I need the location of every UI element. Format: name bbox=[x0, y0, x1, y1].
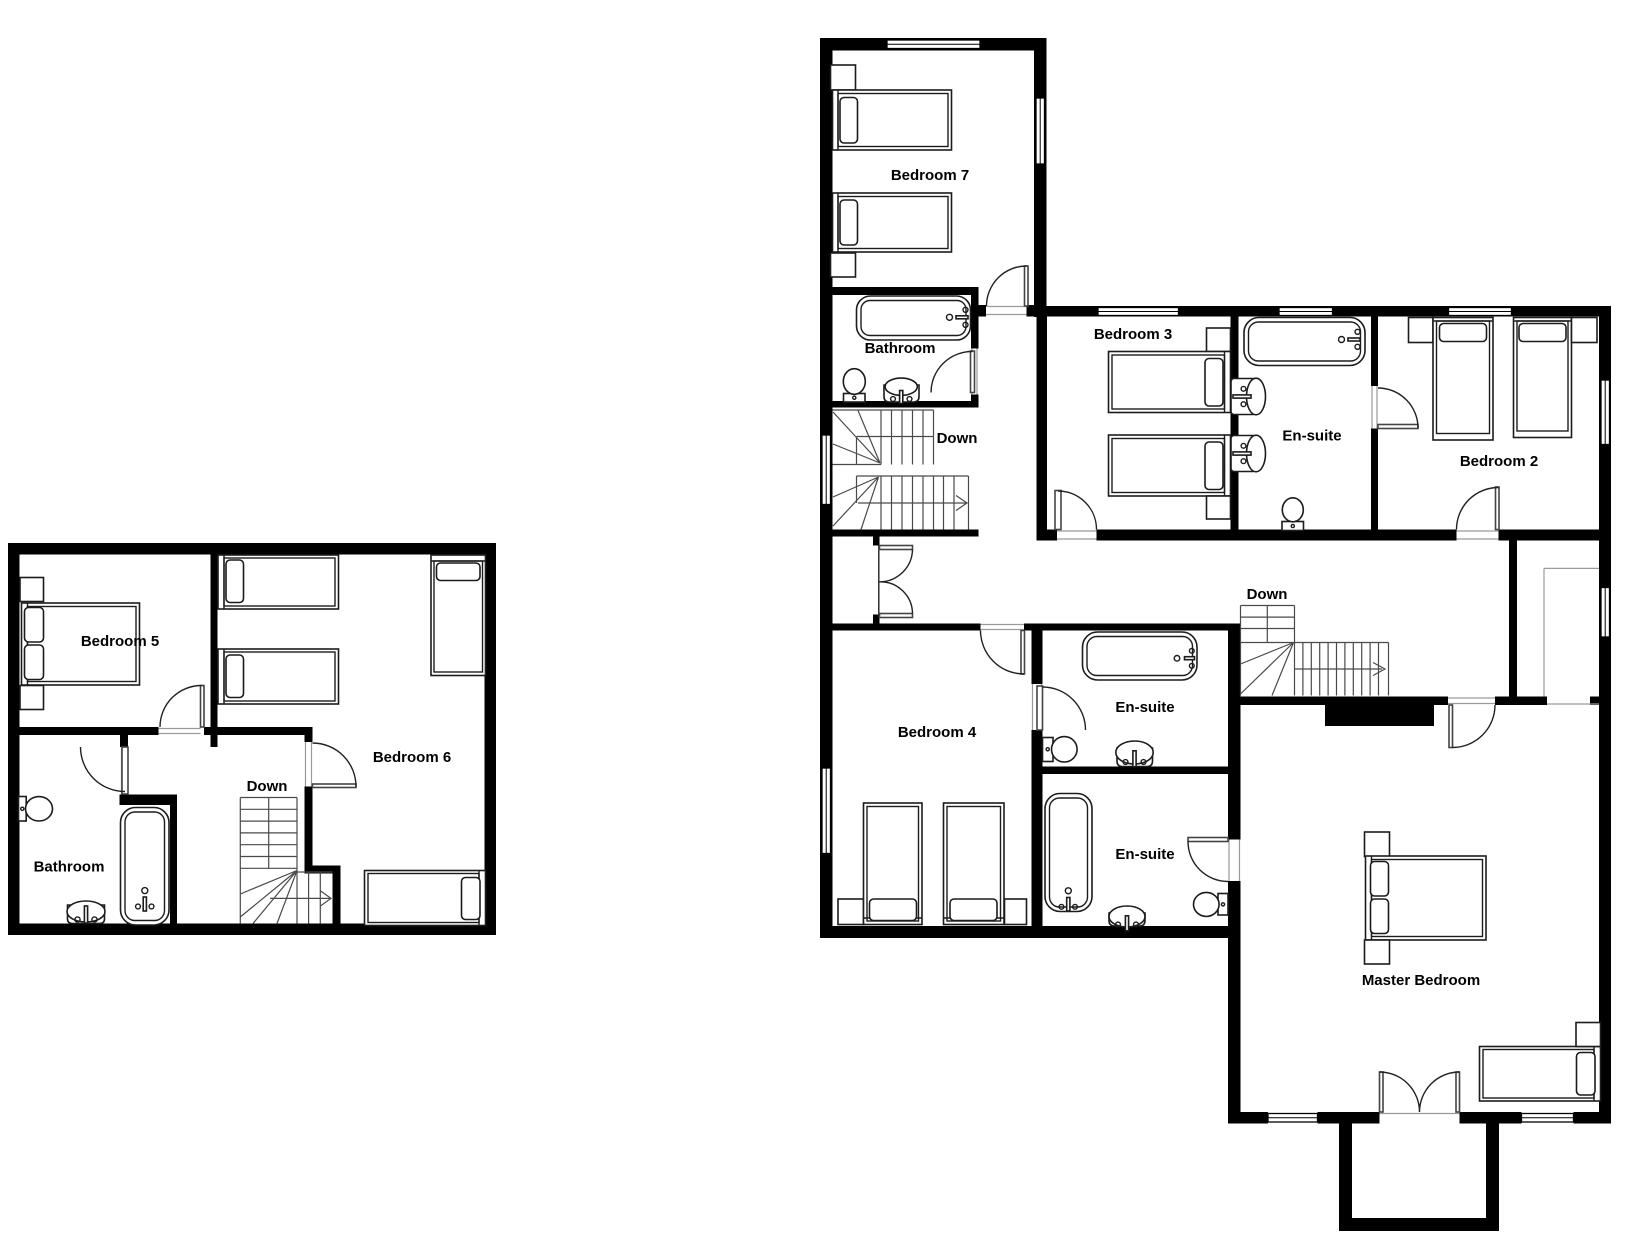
svg-text:Bedroom 6: Bedroom 6 bbox=[373, 749, 451, 766]
svg-text:Down: Down bbox=[247, 778, 288, 795]
svg-text:Bedroom 3: Bedroom 3 bbox=[1094, 326, 1172, 343]
svg-text:Bathroom: Bathroom bbox=[34, 859, 105, 876]
svg-text:En-suite: En-suite bbox=[1282, 428, 1341, 445]
svg-text:Master Bedroom: Master Bedroom bbox=[1362, 972, 1480, 989]
svg-text:Bathroom: Bathroom bbox=[865, 340, 936, 357]
svg-text:En-suite: En-suite bbox=[1115, 699, 1174, 716]
svg-text:Down: Down bbox=[937, 430, 978, 447]
svg-text:En-suite: En-suite bbox=[1115, 846, 1174, 863]
svg-text:Bedroom 5: Bedroom 5 bbox=[81, 633, 159, 650]
svg-text:Bedroom 4: Bedroom 4 bbox=[898, 724, 977, 741]
svg-text:Bedroom 2: Bedroom 2 bbox=[1460, 453, 1538, 470]
svg-text:Down: Down bbox=[1247, 586, 1288, 603]
svg-text:Bedroom 7: Bedroom 7 bbox=[891, 167, 969, 184]
